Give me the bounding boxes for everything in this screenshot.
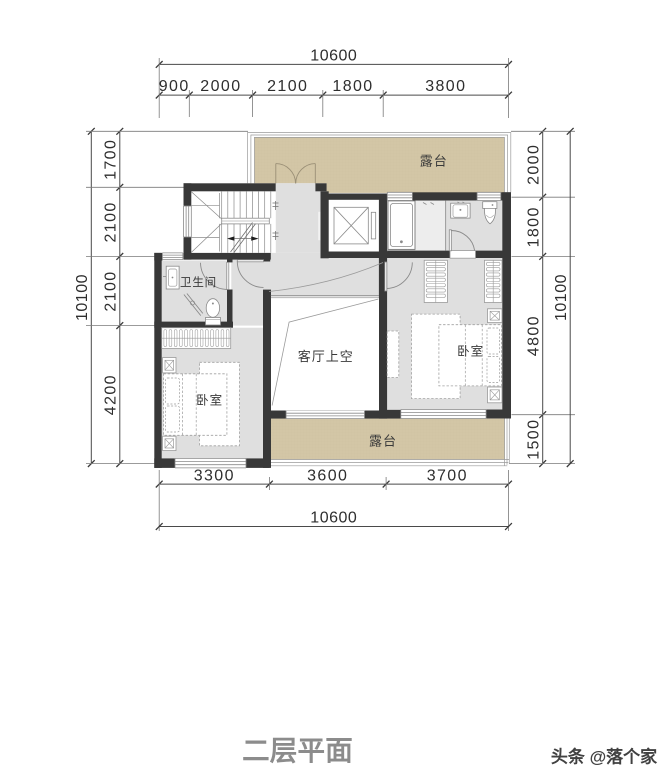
svg-text:10100: 10100 (74, 274, 91, 321)
svg-text:1800: 1800 (332, 78, 373, 95)
svg-text:1500: 1500 (526, 419, 543, 460)
svg-text:900: 900 (159, 78, 190, 95)
svg-text:1800: 1800 (526, 206, 543, 247)
svg-text:2100: 2100 (103, 201, 120, 242)
svg-text:露台: 露台 (369, 433, 397, 448)
svg-text:2000: 2000 (526, 144, 543, 185)
svg-text:3600: 3600 (307, 467, 348, 484)
svg-text:卧室: 卧室 (196, 393, 223, 408)
svg-text:3300: 3300 (194, 467, 235, 484)
svg-text:10100: 10100 (553, 274, 570, 321)
svg-text:卫生间: 卫生间 (180, 275, 217, 289)
svg-text:二层平面: 二层平面 (242, 735, 353, 766)
svg-text:1700: 1700 (103, 139, 120, 180)
svg-text:10600: 10600 (310, 48, 357, 65)
svg-text:2100: 2100 (267, 78, 308, 95)
svg-text:卧室: 卧室 (457, 344, 484, 359)
svg-text:10600: 10600 (310, 510, 357, 527)
svg-text:3800: 3800 (425, 78, 466, 95)
svg-text:头条 @落个家: 头条 @落个家 (551, 747, 657, 767)
svg-text:4800: 4800 (526, 315, 543, 356)
svg-text:露台: 露台 (420, 154, 448, 169)
svg-text:2000: 2000 (200, 78, 241, 95)
svg-text:客厅上空: 客厅上空 (298, 349, 354, 364)
svg-text:4200: 4200 (103, 374, 120, 415)
svg-text:3700: 3700 (427, 467, 468, 484)
svg-text:2100: 2100 (103, 270, 120, 311)
